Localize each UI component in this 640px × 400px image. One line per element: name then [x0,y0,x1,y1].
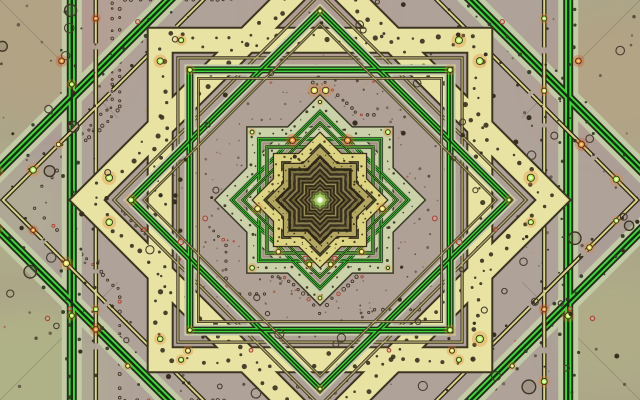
abstract-fractal-image [0,0,640,400]
fractal-star-canvas [0,0,640,400]
center-glow [310,190,330,210]
